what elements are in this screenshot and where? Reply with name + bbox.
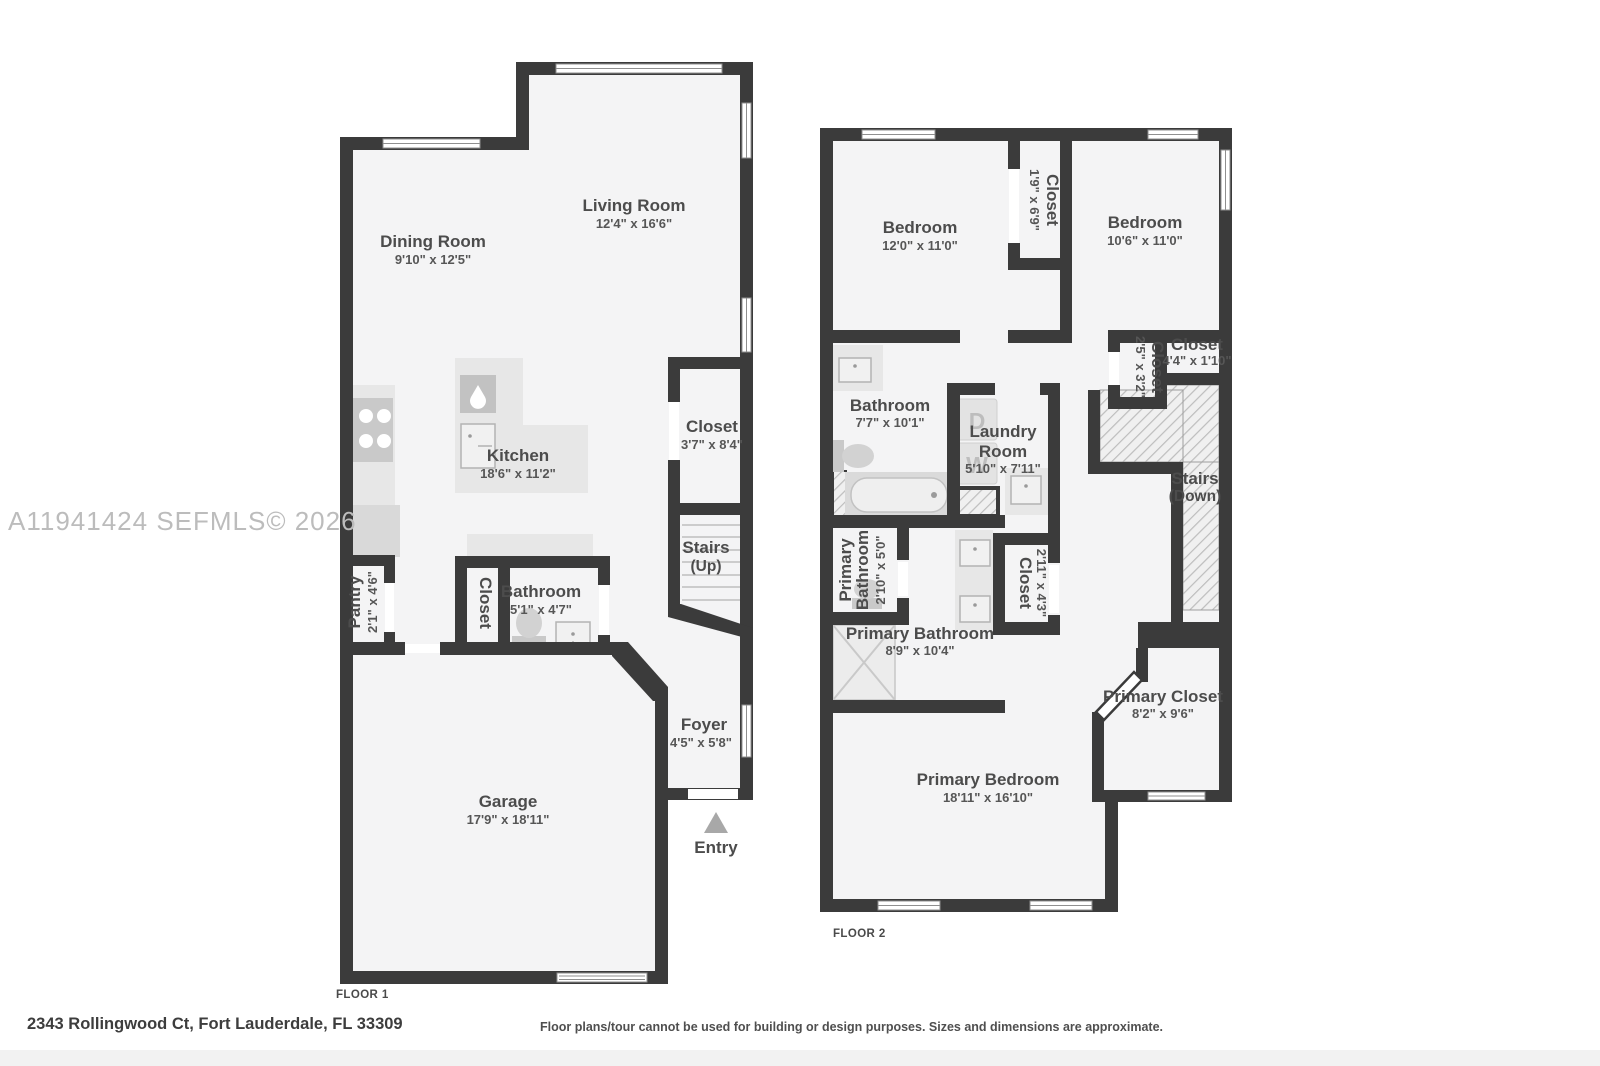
floor2-plan: D W [820,128,1232,912]
dining-room-label: Dining Room [380,232,486,251]
mls-watermark: A11941424 SEFMLS© 2026 [8,506,357,537]
bedroom-right-dims: 10'6" x 11'0" [1107,233,1183,248]
wc-label2: Bathroom [853,530,872,610]
footer-strip [0,1050,1600,1066]
primary-bedroom-label: Primary Bedroom [917,770,1060,789]
floor1-tag: FLOOR 1 [336,989,389,1001]
closet1-label: Closet [686,417,738,436]
hall-closet-label: Closet [476,577,495,629]
bathroom1-dims: 5'1" x 4'7" [510,602,572,617]
wc-dims: 2'10" x 5'0" [873,535,888,604]
foyer-label: Foyer [681,715,728,734]
bathroom1-label: Bathroom [501,582,581,601]
stairs-up-dir: (Up) [691,558,722,575]
closet-wide-dims: 4'4" x 1'10" [1162,353,1231,368]
primary-bedroom-dims: 18'11" x 16'10" [943,790,1033,805]
shower-niche-hatch [833,471,846,518]
property-address: 2343 Rollingwood Ct, Fort Lauderdale, FL… [27,1015,403,1034]
floor1-plan: Dining Room 9'10" x 12'5" Living Room 12… [340,62,753,984]
kitchen-label: Kitchen [487,446,549,465]
pantry-label: Pantry [345,575,364,628]
closet-mid-dims: 2'11" x 4'3" [1034,549,1049,617]
closet-center-label: Closet [1043,174,1062,226]
entry-label: Entry [694,838,738,857]
laundry-label2: Room [979,442,1027,461]
closet1-dims: 3'7" x 8'4" [681,437,743,452]
stairs-down-dir: (Down) [1169,488,1222,505]
laundry-dims: 5'10" x 7'11" [965,461,1041,476]
closet-small-dims: 2'5" x 3'2" [1133,336,1148,398]
bathroom2-dims: 7'7" x 10'1" [855,415,924,430]
dining-room-dims: 9'10" x 12'5" [395,252,471,267]
living-room-label: Living Room [583,196,686,215]
living-room-dims: 12'4" x 16'6" [596,216,672,231]
entry-arrow-icon [704,812,728,833]
closet-mid-label: Closet [1016,557,1035,609]
bedroom-left-label: Bedroom [883,218,958,237]
laundry-label: Laundry [969,422,1037,441]
floor2-tag: FLOOR 2 [833,928,886,940]
primary-bathroom-dims: 8'9" x 10'4" [885,643,954,658]
primary-bathroom-label: Primary Bathroom [846,624,994,643]
floorplan-page: { "watermark": "A11941424 SEFMLS© 2026",… [0,0,1600,1066]
closet-wide-label: Closet [1171,335,1223,354]
garage-label: Garage [479,792,538,811]
disclaimer-text: Floor plans/tour cannot be used for buil… [540,1020,1163,1034]
pantry-dims: 2'1" x 4'6" [365,571,380,633]
garage-door [557,973,647,982]
bathroom2-label: Bathroom [850,396,930,415]
garage-dims: 17'9" x 18'11" [467,812,550,827]
stairs-up-label: Stairs [682,538,729,557]
primary-closet-dims: 8'2" x 9'6" [1132,706,1194,721]
bedroom-left-dims: 12'0" x 11'0" [882,238,958,253]
closet-center-dims: 1'9" x 6'9" [1027,169,1042,231]
foyer-dims: 4'5" x 5'8" [670,735,732,750]
stairs-down-label: Stairs [1171,469,1218,488]
primary-closet-label: Primary Closet [1103,687,1223,706]
floor1-footprint [340,62,753,984]
kitchen-dims: 18'6" x 11'2" [480,466,556,481]
bedroom-right-label: Bedroom [1108,213,1183,232]
